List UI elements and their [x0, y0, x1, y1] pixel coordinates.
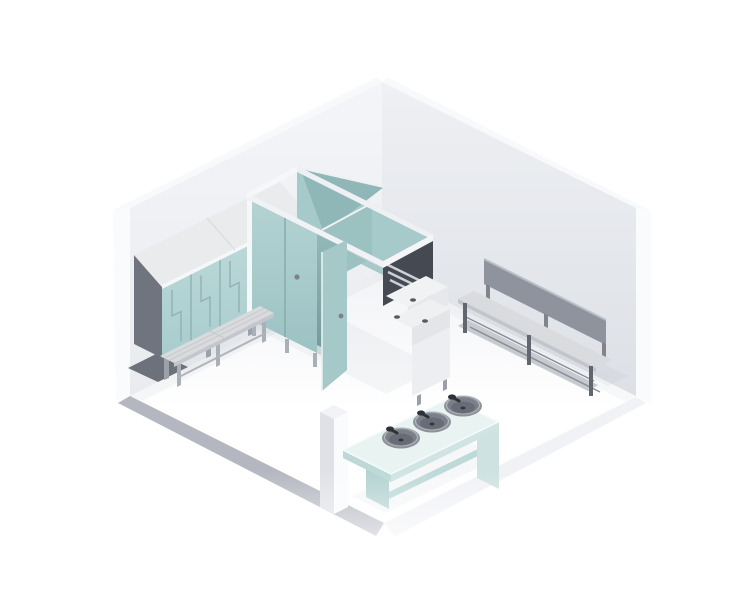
cubicle-facade-stile: [247, 199, 252, 321]
left-wall-outer-edge: [113, 208, 130, 404]
basin-drain: [398, 439, 403, 442]
scene-canvas: [0, 0, 753, 616]
foreground-fade: [0, 470, 753, 616]
cubicle-door-lock: [294, 274, 299, 279]
right-wall-outer-edge: [636, 208, 651, 404]
basin-drain: [429, 423, 434, 426]
isometric-room-render: [0, 0, 753, 616]
basin-drain: [460, 407, 465, 410]
cubicle-leaf-lock: [339, 314, 344, 319]
